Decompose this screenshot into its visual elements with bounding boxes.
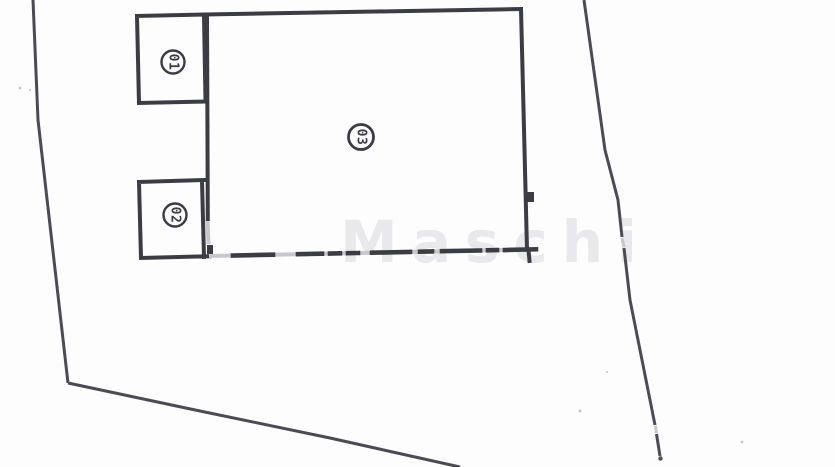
scan-speck xyxy=(19,87,22,90)
scan-speck xyxy=(741,441,744,444)
corner-overshoot-tick xyxy=(529,250,530,261)
room-03-left-spine xyxy=(207,15,208,220)
room-label-03-text: 03 xyxy=(354,129,369,146)
scanned-plan-page: Maschi xyxy=(0,0,835,467)
room-label-02-text: 02 xyxy=(168,207,183,224)
boundary-line-end-blob xyxy=(658,456,662,460)
ghost-left-spine xyxy=(208,219,209,244)
site-plan-svg: Maschi xyxy=(0,0,835,467)
right-wall-nub xyxy=(526,192,534,202)
watermark-text: Maschi xyxy=(340,208,651,276)
scan-speck xyxy=(29,89,31,91)
scan-speck xyxy=(606,371,608,373)
room-03-spine-foot xyxy=(207,245,213,254)
room-label-01-text: 01 xyxy=(166,54,181,71)
scan-speck xyxy=(579,410,582,413)
